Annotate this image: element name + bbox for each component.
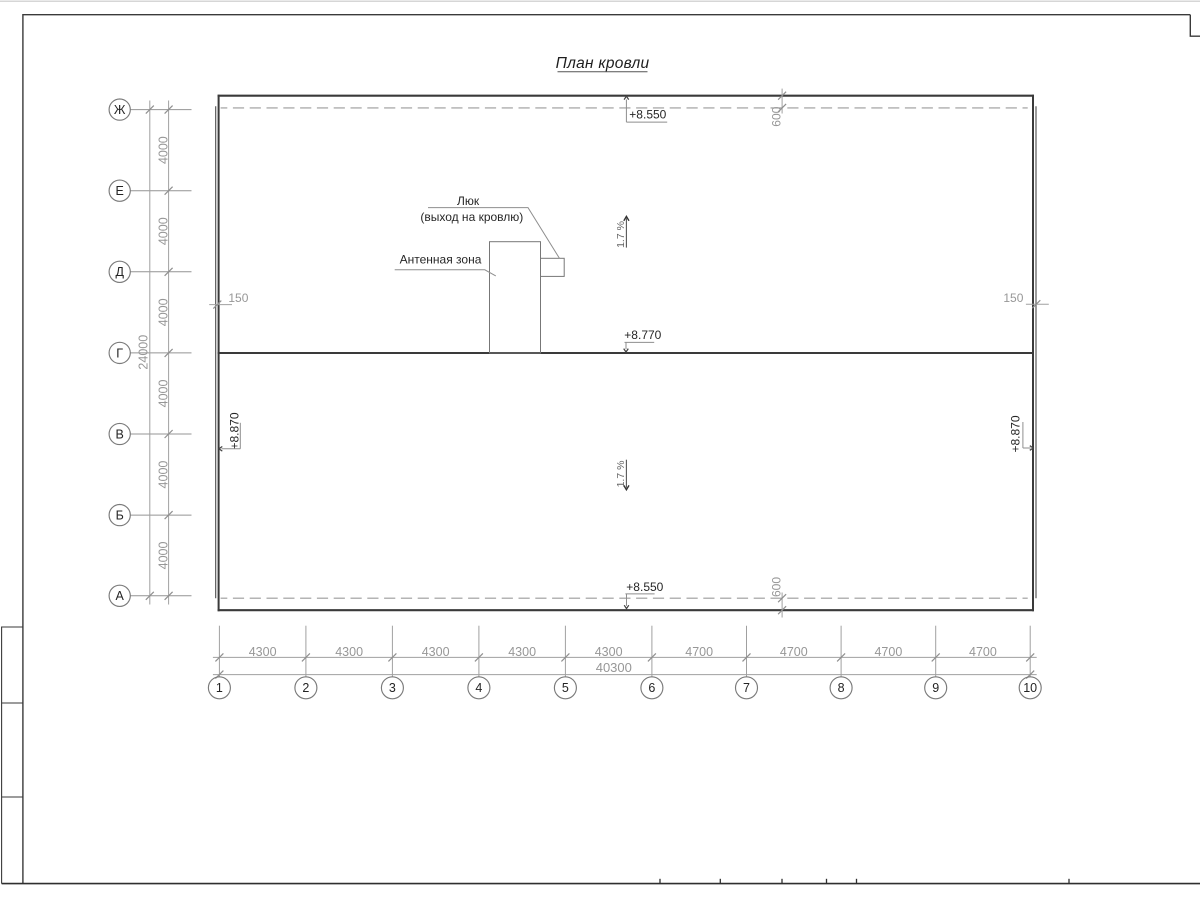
svg-text:4300: 4300: [335, 645, 363, 659]
svg-text:4: 4: [475, 681, 482, 695]
svg-text:10: 10: [1023, 681, 1037, 695]
svg-text:8: 8: [838, 681, 845, 695]
svg-text:4700: 4700: [685, 645, 713, 659]
svg-text:План кровли: План кровли: [556, 55, 650, 72]
svg-text:4300: 4300: [422, 645, 450, 659]
svg-text:2: 2: [302, 681, 309, 695]
svg-text:+8.870: +8.870: [1008, 415, 1022, 452]
svg-text:Ж: Ж: [114, 103, 126, 117]
svg-text:150: 150: [228, 291, 248, 305]
svg-text:Д: Д: [115, 265, 124, 279]
svg-text:4300: 4300: [508, 645, 536, 659]
svg-text:4300: 4300: [595, 645, 623, 659]
svg-text:4000: 4000: [156, 542, 170, 570]
svg-text:Люк: Люк: [457, 194, 480, 208]
svg-text:6: 6: [648, 681, 655, 695]
svg-text:+8.550: +8.550: [626, 580, 663, 594]
svg-text:(выход на кровлю): (выход на кровлю): [420, 210, 523, 224]
svg-text:4000: 4000: [156, 217, 170, 245]
svg-text:600: 600: [770, 577, 784, 597]
svg-text:4000: 4000: [156, 298, 170, 326]
svg-text:Г: Г: [116, 346, 123, 360]
svg-text:4300: 4300: [249, 645, 277, 659]
svg-text:+8.870: +8.870: [228, 412, 242, 449]
svg-text:40300: 40300: [596, 660, 632, 675]
svg-text:4000: 4000: [156, 136, 170, 164]
svg-text:4700: 4700: [969, 645, 997, 659]
svg-text:7: 7: [743, 681, 750, 695]
svg-text:Б: Б: [116, 509, 124, 523]
svg-text:Е: Е: [116, 184, 124, 198]
svg-text:4700: 4700: [780, 645, 808, 659]
svg-text:4700: 4700: [874, 645, 902, 659]
svg-text:3: 3: [389, 681, 396, 695]
svg-text:Антенная зона: Антенная зона: [400, 253, 482, 267]
svg-text:1.7 %: 1.7 %: [615, 461, 627, 488]
svg-text:5: 5: [562, 681, 569, 695]
svg-text:+8.550: +8.550: [629, 108, 666, 122]
svg-text:4000: 4000: [156, 461, 170, 489]
svg-text:150: 150: [1003, 291, 1023, 305]
svg-text:1: 1: [216, 681, 223, 695]
svg-text:А: А: [116, 589, 125, 603]
svg-text:+8.770: +8.770: [624, 328, 661, 342]
svg-text:4000: 4000: [156, 380, 170, 408]
svg-text:9: 9: [932, 681, 939, 695]
svg-text:24000: 24000: [137, 335, 151, 370]
svg-text:1.7 %: 1.7 %: [615, 221, 627, 248]
svg-text:600: 600: [770, 106, 784, 126]
svg-text:В: В: [116, 427, 124, 441]
